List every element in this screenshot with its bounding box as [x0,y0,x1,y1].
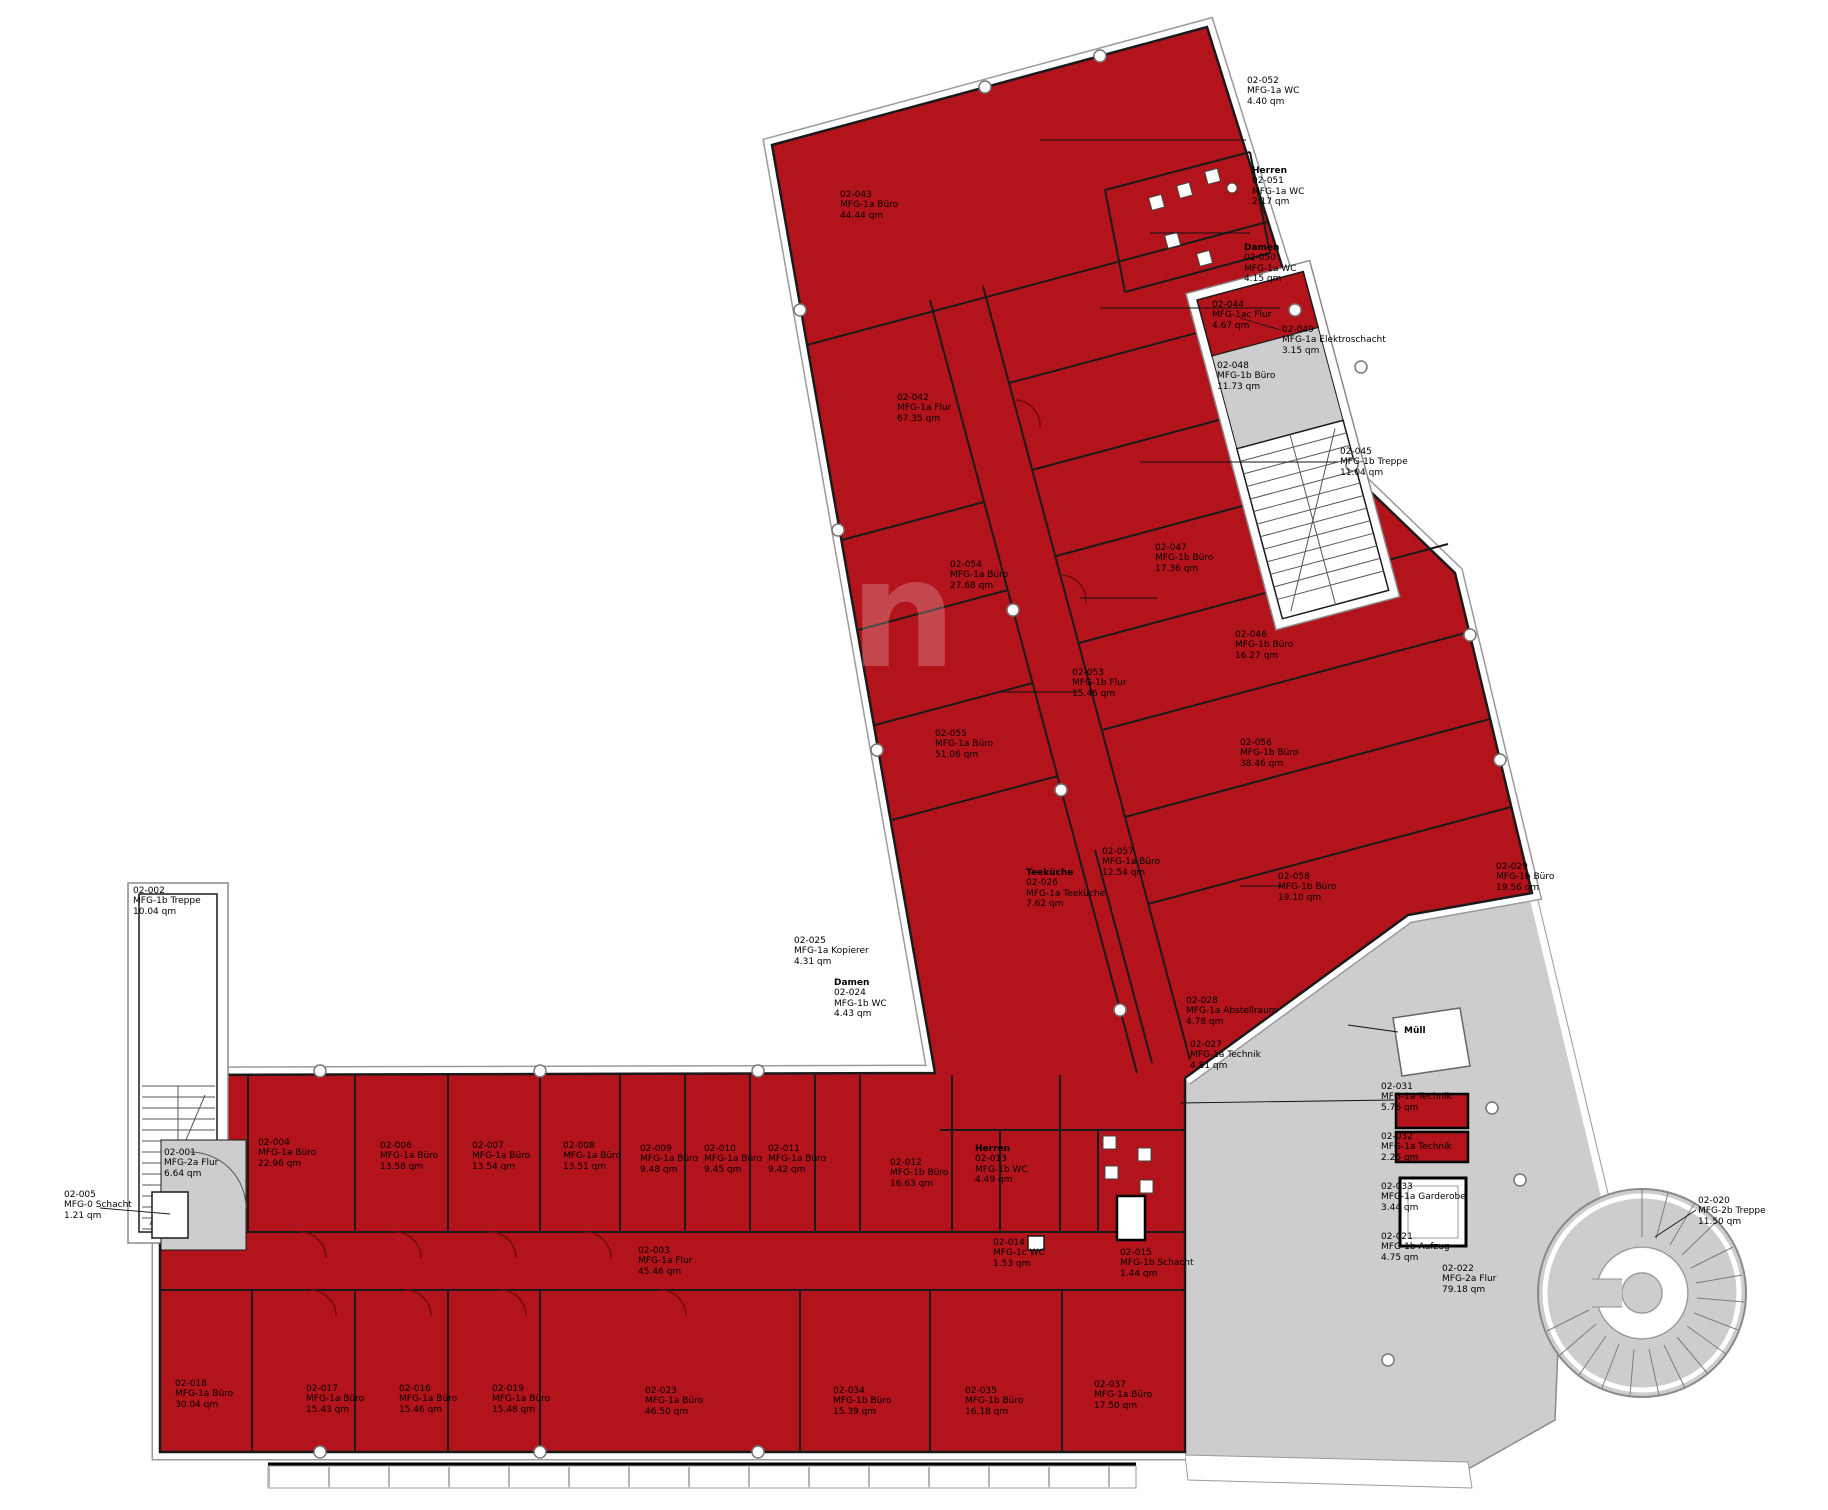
room-label: 02-035MFG-1b Büro16.18 qm [965,1386,1023,1417]
room-label: Damen02-024MFG-1b WC4.43 qm [834,978,887,1019]
floor-plan-page: en 02-002MFG-1b Treppe10.04 qm 02-001MFG… [0,0,1828,1510]
room-label: 02-049MFG-1a Elektroschacht3.15 qm [1282,325,1386,356]
room-label: 02-020MFG-2b Treppe11.50 qm [1698,1196,1766,1227]
room-label: Damen02-050MFG-1a WC4.15 qm [1244,243,1296,284]
room-label: 02-057MFG-1a Büro12.54 qm [1102,847,1160,878]
room-label: 02-053MFG-1b Flur15.46 qm [1072,668,1127,699]
room-label: 02-015MFG-1b Schacht1.44 qm [1120,1248,1194,1279]
room-label: 02-005MFG-0 Schacht1.21 qm [64,1190,132,1221]
room-label: 02-058MFG-1b Büro19.10 qm [1278,872,1336,903]
room-label: 02-011MFG-1a Büro9.42 qm [768,1144,826,1175]
muell-box [1393,1008,1470,1076]
room-label: 02-045MFG-1b Treppe11.04 qm [1340,447,1408,478]
schacht-box [152,1192,188,1238]
room-label: 02-052MFG-1a WC4.40 qm [1247,76,1299,107]
room-label: 02-033MFG-1a Garderobe3.44 qm [1381,1182,1466,1213]
room-label: 02-054MFG-1a Büro27.68 qm [950,560,1008,591]
room-label: 02-014MFG-1c WC1.53 qm [993,1238,1045,1269]
room-label: 02-012MFG-1b Büro16.63 qm [890,1158,948,1189]
room-label: 02-018MFG-1a Büro30.04 qm [175,1379,233,1410]
room-label: 02-022MFG-2a Flur79.18 qm [1442,1264,1496,1295]
room-label: 02-009MFG-1a Büro9.48 qm [640,1144,698,1175]
room-label: 02-046MFG-1b Büro16.27 qm [1235,630,1293,661]
room-label: Herren02-051MFG-1a WC2.17 qm [1252,166,1304,207]
room-label: 02-047MFG-1b Büro17.36 qm [1155,543,1213,574]
room-label: 02-048MFG-1b Büro11.73 qm [1217,361,1275,392]
room-label: 02-029MFG-1b Büro19.56 qm [1496,862,1554,893]
room-label: 02-016MFG-1a Büro15.46 qm [399,1384,457,1415]
room-label: 02-043MFG-1a Büro44.44 qm [840,190,898,221]
room-label: Teeküche02-026MFG-1a Teeküche7.62 qm [1026,868,1105,909]
room-label: 02-031MFG-1a Technik5.76 qm [1381,1082,1452,1113]
left-stair-tower [128,883,246,1250]
room-label: Müll [1404,1026,1426,1036]
room-label: 02-007MFG-1a Büro13.54 qm [472,1141,530,1172]
room-label: 02-056MFG-1b Büro38.46 qm [1240,738,1298,769]
room-label: 02-002MFG-1b Treppe10.04 qm [133,886,201,917]
room-label: 02-028MFG-1a Abstellraum4.78 qm [1186,996,1278,1027]
room-label: 02-027MFG-1a Technik4.81 qm [1190,1040,1261,1071]
room-label: 02-025MFG-1a Kopierer4.31 qm [794,936,869,967]
floor-plan-drawing [0,0,1828,1510]
room-label: 02-055MFG-1a Büro51.06 qm [935,729,993,760]
room-label: 02-023MFG-1a Büro46.50 qm [645,1386,703,1417]
room-label: 02-019MFG-1a Büro15.48 qm [492,1384,550,1415]
room-label: 02-017MFG-1a Büro15.43 qm [306,1384,364,1415]
shaft-box [1117,1196,1145,1240]
room-label: 02-001MFG-2a Flur6.64 qm [164,1148,218,1179]
room-label: 02-010MFG-1a Büro9.45 qm [704,1144,762,1175]
room-label: 02-003MFG-1a Flur45.46 qm [638,1246,692,1277]
room-label: 02-034MFG-1b Büro15.39 qm [833,1386,891,1417]
room-label: Herren02-013MFG-1b WC4.49 qm [975,1144,1028,1185]
room-label: 02-021MFG-1b Aufzug4.75 qm [1381,1232,1450,1263]
room-label: 02-042MFG-1a Flur67.35 qm [897,393,951,424]
room-label: 02-006MFG-1a Büro13.58 qm [380,1141,438,1172]
room-label: 02-044MFG-1ac Flur4.67 qm [1212,300,1271,331]
room-label: 02-032MFG-1a Technik2.26 qm [1381,1132,1452,1163]
room-label: 02-037MFG-1a Büro17.50 qm [1094,1380,1152,1411]
room-label: 02-008MFG-1a Büro13.51 qm [563,1141,621,1172]
room-label: 02-004MFG-1a Büro22.96 qm [258,1138,316,1169]
